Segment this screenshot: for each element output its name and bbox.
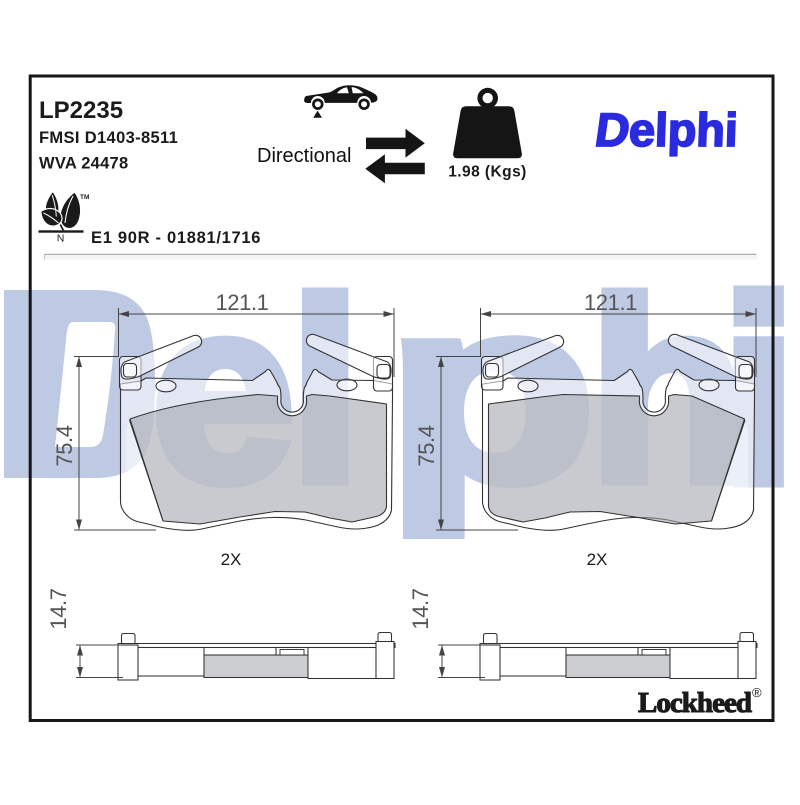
svg-text:Lockheed: Lockheed	[638, 687, 752, 719]
svg-text:TM: TM	[80, 194, 89, 201]
svg-text:75.4: 75.4	[414, 425, 439, 466]
svg-text:E1 90R - 01881/1716: E1 90R - 01881/1716	[91, 229, 261, 247]
svg-text:121.1: 121.1	[584, 290, 637, 315]
svg-text:FMSI D1403-8511: FMSI D1403-8511	[39, 129, 178, 147]
svg-text:D: D	[592, 104, 633, 157]
svg-text:LP2235: LP2235	[39, 97, 123, 124]
svg-text:elphi: elphi	[628, 103, 739, 156]
svg-text:1.98 (Kgs): 1.98 (Kgs)	[448, 164, 527, 181]
svg-text:14.7: 14.7	[408, 588, 433, 629]
svg-text:75.4: 75.4	[52, 425, 77, 466]
svg-text:121.1: 121.1	[215, 290, 268, 315]
svg-text:14.7: 14.7	[46, 588, 71, 629]
svg-text:®: ®	[752, 685, 762, 700]
svg-text:Directional: Directional	[257, 145, 351, 167]
svg-text:2X: 2X	[221, 550, 242, 569]
svg-text:WVA 24478: WVA 24478	[39, 155, 128, 173]
svg-text:N: N	[57, 233, 65, 245]
svg-text:2X: 2X	[587, 550, 608, 569]
